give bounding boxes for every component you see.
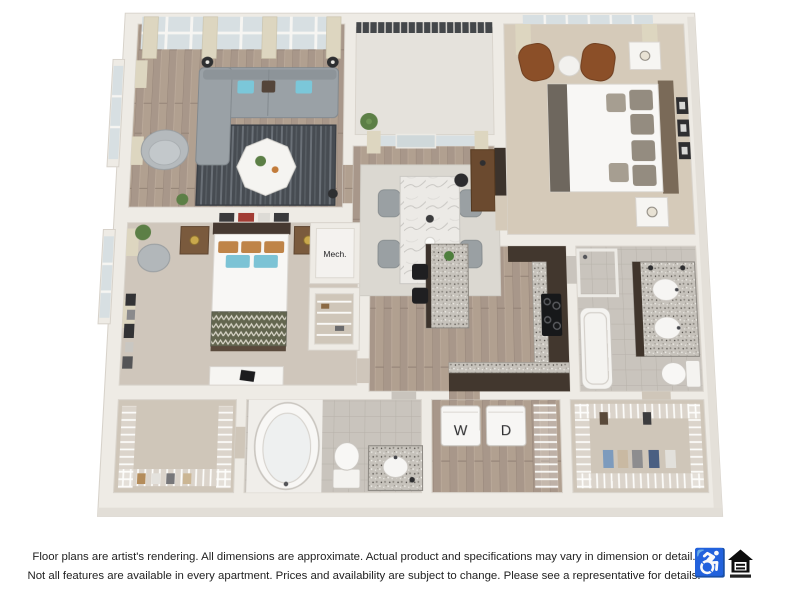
master-bed <box>208 223 290 352</box>
door-opening <box>449 391 480 399</box>
disclaimer-line-2: Not all features are available in every … <box>0 567 728 586</box>
accessibility-icon: ♿ <box>693 548 727 578</box>
floor-plan-svg: Mech. <box>80 10 736 523</box>
wire-shelf <box>577 473 705 488</box>
dryer: D <box>486 406 526 446</box>
floor-plan-page: { "page": { "background_color": "#ffffff… <box>0 0 800 600</box>
bedroom-2 <box>492 15 695 234</box>
door-opening <box>566 256 577 284</box>
shower <box>578 250 618 296</box>
equal-housing-opportunity-icon <box>727 549 754 580</box>
linen-closet <box>308 288 359 351</box>
floor-plan-rendering: Mech. <box>80 10 736 523</box>
bar-stool <box>412 288 428 304</box>
master-bathroom <box>244 391 423 492</box>
walk-in-closet-2 <box>570 391 709 492</box>
door-opening <box>392 391 417 399</box>
island-plant <box>444 251 454 261</box>
disclaimer: Floor plans are artist's rendering. All … <box>0 548 728 586</box>
brown-pillow <box>262 81 276 93</box>
balcony <box>355 22 494 134</box>
door-opening <box>343 165 353 203</box>
mech-closet: Mech. <box>309 223 360 284</box>
walk-in-closet-1 <box>113 400 246 493</box>
blue-pillow <box>295 81 312 94</box>
dryer-label: D <box>501 422 512 438</box>
washer-label: W <box>454 422 468 438</box>
wire-shelf <box>533 404 558 488</box>
throw-blanket <box>211 312 287 346</box>
blue-pillow <box>237 81 254 94</box>
bed-2 <box>547 81 679 194</box>
vanity-master <box>368 446 422 491</box>
door-opening <box>642 391 671 399</box>
cooktop <box>541 294 562 336</box>
door-opening <box>235 427 246 459</box>
bathtub <box>580 308 613 390</box>
toilet-master <box>333 443 361 489</box>
corner-chair <box>137 244 170 272</box>
mech-label: Mech. <box>323 250 346 259</box>
side-table <box>558 56 580 76</box>
throw-blanket <box>547 84 570 191</box>
balcony-door <box>396 135 435 148</box>
disclaimer-line-1: Floor plans are artist's rendering. All … <box>0 548 728 567</box>
double-vanity <box>632 262 699 356</box>
living-room <box>106 17 345 207</box>
door-opening <box>357 358 369 383</box>
curtain <box>367 131 381 154</box>
desk <box>471 150 496 211</box>
washer: W <box>441 406 481 446</box>
wire-shelf <box>574 404 700 419</box>
toilet <box>661 360 701 387</box>
headboard <box>213 223 291 235</box>
curtain <box>135 60 148 88</box>
desk-master <box>209 367 283 386</box>
laundry-closet: W D <box>432 391 563 492</box>
bar-stool <box>412 264 428 280</box>
balcony-railing <box>356 22 492 33</box>
bathroom-2 <box>566 246 704 391</box>
door-opening <box>495 196 508 231</box>
